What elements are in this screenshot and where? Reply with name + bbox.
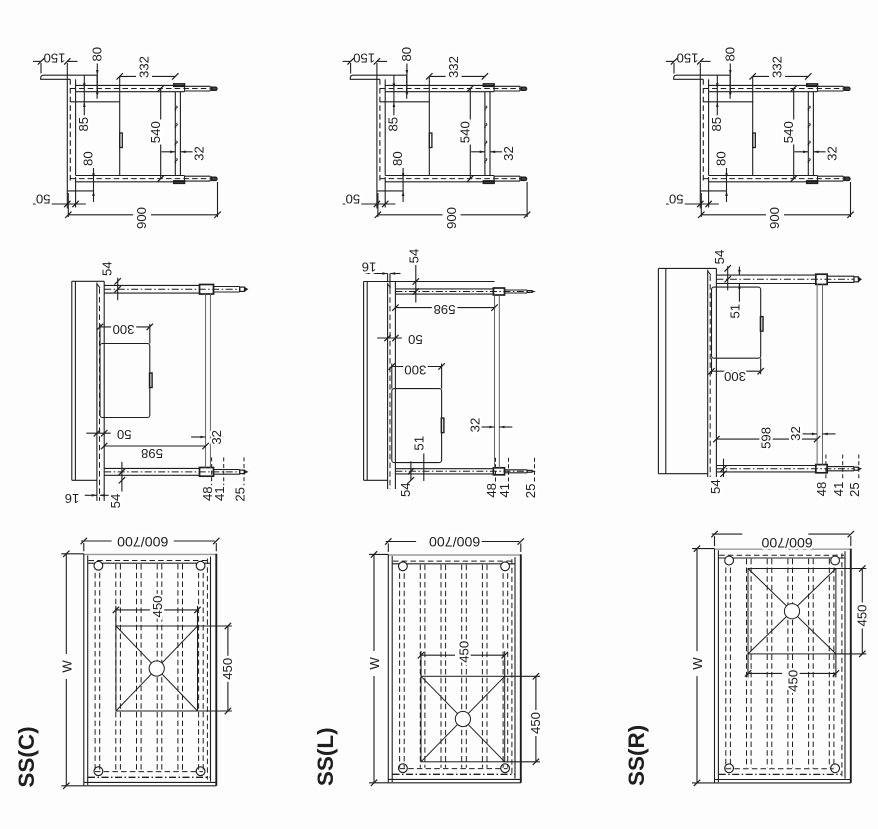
svg-text:900: 900: [444, 207, 459, 229]
svg-text:540: 540: [458, 121, 473, 143]
svg-text:600/700: 600/700: [429, 533, 480, 549]
svg-text:32: 32: [209, 430, 224, 445]
svg-text:900: 900: [767, 207, 782, 229]
svg-text:540: 540: [148, 121, 163, 143]
svg-text:300: 300: [404, 363, 426, 378]
svg-text:48: 48: [814, 482, 829, 497]
svg-text:600/700: 600/700: [117, 533, 168, 549]
svg-text:25: 25: [232, 487, 247, 502]
svg-text:332: 332: [446, 56, 461, 78]
svg-text:80: 80: [390, 151, 405, 166]
svg-text:332: 332: [770, 56, 785, 78]
svg-text:85: 85: [386, 117, 401, 132]
svg-text:540: 540: [781, 121, 796, 143]
svg-text:150: 150: [43, 50, 65, 65]
svg-text:32: 32: [824, 146, 839, 161]
svg-text:450: 450: [220, 658, 235, 680]
svg-text:54: 54: [708, 479, 723, 494]
svg-text:SS(R): SS(R): [624, 725, 649, 786]
svg-text:32: 32: [788, 426, 803, 441]
svg-text:32: 32: [191, 146, 206, 161]
svg-text:50: 50: [36, 192, 51, 207]
svg-text:41: 41: [212, 486, 227, 501]
svg-text:54: 54: [398, 482, 413, 497]
svg-text:W: W: [690, 657, 705, 670]
svg-text:50: 50: [117, 427, 132, 442]
svg-text:25: 25: [523, 484, 538, 499]
svg-text:450: 450: [528, 712, 543, 734]
svg-text:80: 80: [399, 47, 414, 62]
svg-text:32: 32: [467, 418, 482, 433]
svg-text:54: 54: [712, 250, 727, 265]
svg-text:598: 598: [759, 427, 774, 449]
svg-text:598: 598: [433, 302, 455, 317]
svg-text:25: 25: [847, 482, 862, 497]
svg-text:600/700: 600/700: [761, 534, 812, 550]
svg-text:85: 85: [709, 117, 724, 132]
svg-text:332: 332: [137, 56, 152, 78]
svg-text:SS(C): SS(C): [14, 726, 39, 787]
svg-text:SS(L): SS(L): [313, 727, 338, 786]
svg-text:16: 16: [65, 491, 80, 506]
svg-text:150: 150: [353, 50, 375, 65]
svg-text:54: 54: [100, 261, 115, 276]
svg-text:54: 54: [108, 494, 123, 509]
svg-text:450: 450: [456, 641, 471, 663]
svg-text:85: 85: [76, 117, 91, 132]
svg-text:80: 80: [81, 151, 96, 166]
svg-text:16: 16: [362, 259, 377, 274]
svg-text:300: 300: [724, 369, 746, 384]
svg-text:150: 150: [676, 50, 698, 65]
svg-text:W: W: [367, 657, 382, 670]
svg-text:50: 50: [669, 192, 684, 207]
svg-text:80: 80: [714, 151, 729, 166]
svg-text:W: W: [60, 660, 75, 673]
svg-text:41: 41: [831, 482, 846, 497]
svg-text:900: 900: [134, 207, 149, 229]
svg-text:300: 300: [112, 322, 134, 337]
svg-text:80: 80: [722, 47, 737, 62]
svg-text:450: 450: [150, 595, 165, 617]
svg-text:450: 450: [786, 670, 801, 692]
svg-text:450: 450: [854, 604, 869, 626]
svg-text:41: 41: [497, 483, 512, 498]
svg-text:32: 32: [501, 146, 516, 161]
svg-text:80: 80: [89, 47, 104, 62]
svg-text:598: 598: [141, 446, 163, 461]
svg-text:51: 51: [412, 436, 427, 451]
svg-text:50: 50: [408, 332, 423, 347]
svg-text:50: 50: [345, 192, 360, 207]
svg-text:51: 51: [728, 304, 743, 319]
svg-text:54: 54: [407, 249, 422, 264]
